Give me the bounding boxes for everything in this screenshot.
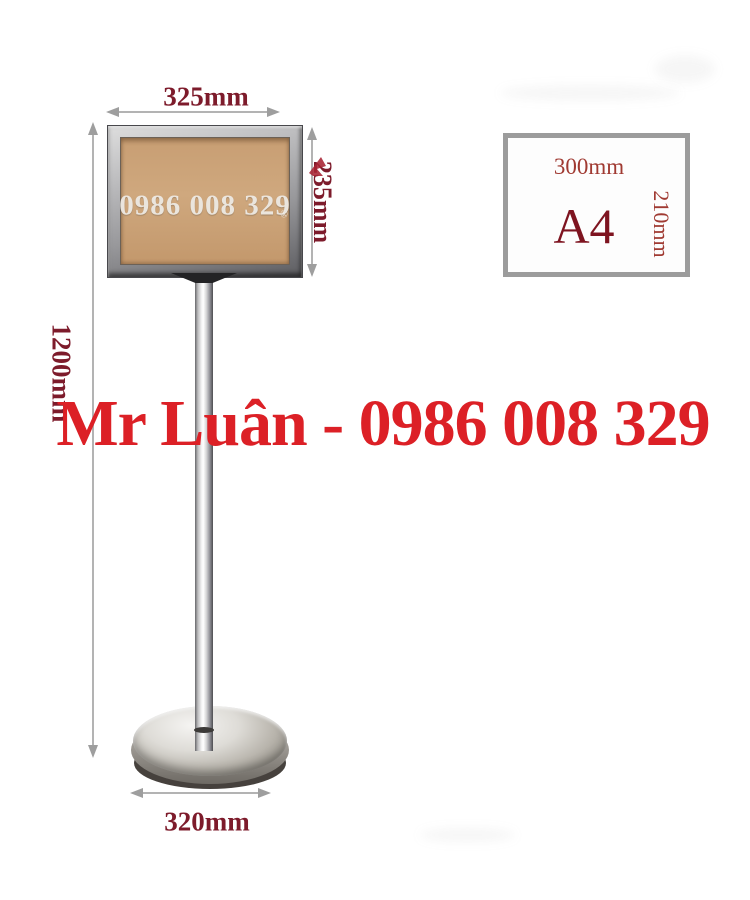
- photo-smudge: [655, 55, 715, 83]
- board-width-label: 325mm: [163, 82, 248, 113]
- arrowhead-up-icon: [307, 127, 317, 140]
- a4-height-label: 210mm: [648, 190, 674, 257]
- a4-width-label: 300mm: [554, 154, 624, 180]
- photo-smudge: [420, 828, 515, 842]
- arrowhead-down-icon: [88, 745, 98, 758]
- board-watermark-phone: 0986 008 329: [119, 190, 291, 223]
- registered-trademark-symbol: ®: [280, 210, 288, 221]
- base-diameter-dimension-line: [140, 792, 260, 794]
- board-width-dimension-line: [116, 111, 269, 113]
- arrowhead-left-icon: [106, 107, 119, 117]
- product-photo-scene: 0986 008 329 ® 325mm 235mm 1200mm 320mm …: [0, 0, 750, 900]
- photo-smudge: [500, 85, 680, 101]
- stand-pole: [195, 281, 213, 751]
- a4-size-label: A4: [553, 197, 614, 255]
- arrowhead-up-icon: [88, 122, 98, 135]
- base-diameter-label: 320mm: [164, 807, 249, 838]
- frame-pole-connector: [171, 273, 237, 283]
- board-height-dimension-line: [311, 138, 313, 266]
- seller-contact-watermark: Mr Luân - 0986 008 329: [56, 386, 709, 462]
- pole-collar-ring: [194, 727, 214, 733]
- a4-size-diagram: 300mm A4 210mm: [503, 133, 690, 277]
- arrowhead-down-icon: [307, 264, 317, 277]
- arrowhead-right-icon: [258, 788, 271, 798]
- arrowhead-left-icon: [130, 788, 143, 798]
- arrowhead-right-icon: [267, 107, 280, 117]
